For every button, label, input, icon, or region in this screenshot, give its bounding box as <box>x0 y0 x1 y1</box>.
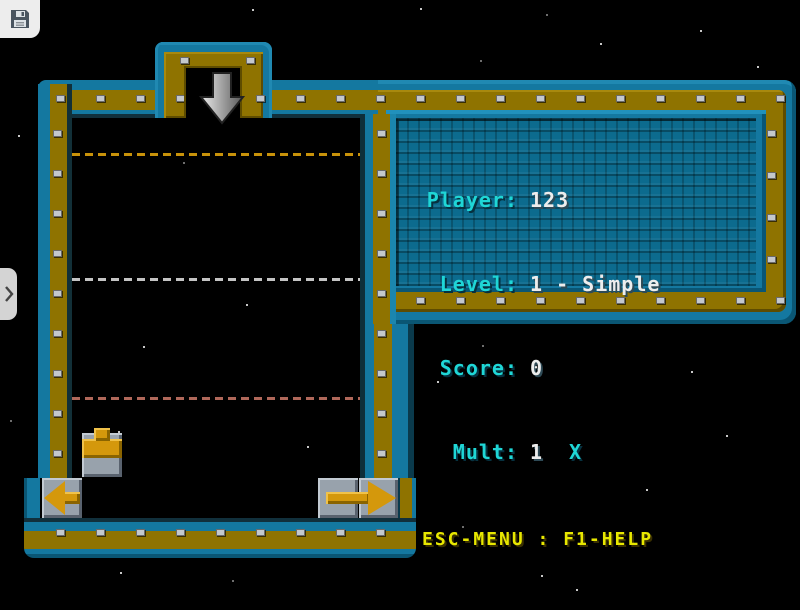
rivet <box>256 95 265 102</box>
rivet <box>136 529 145 536</box>
guide-line <box>72 278 360 281</box>
hud-row-player: Player:123 <box>398 186 758 214</box>
star <box>546 14 548 16</box>
star <box>420 8 422 10</box>
rivet <box>767 214 776 221</box>
mult-label: Mult: <box>398 438 518 466</box>
hud-readout: Player:123 Level:1 - Simple Score:0 Mult… <box>398 130 758 610</box>
rivet <box>56 95 65 102</box>
rivet <box>336 95 345 102</box>
rivet <box>53 210 62 217</box>
player-value: 123 <box>530 188 569 212</box>
rivet <box>53 250 62 257</box>
mult-suffix: X <box>569 440 582 464</box>
mult-value: 1 <box>530 440 543 464</box>
guide-line <box>72 153 360 156</box>
rivet <box>767 130 776 137</box>
rivet <box>176 529 185 536</box>
piece-arrow-left[interactable] <box>42 478 82 518</box>
level-label: Level: <box>398 270 518 298</box>
rivet <box>53 370 62 377</box>
player-label: Player: <box>398 186 518 214</box>
rivet <box>53 130 62 137</box>
rivet <box>336 529 345 536</box>
rivet <box>767 172 776 179</box>
hud-row-score: Score:0 <box>398 354 758 382</box>
rivet <box>377 370 386 377</box>
rivet <box>296 529 305 536</box>
star <box>480 60 482 62</box>
piece-pipe-tee-up[interactable] <box>82 433 122 477</box>
piece-part <box>82 439 122 458</box>
rivet <box>377 210 386 217</box>
floppy-disk-icon <box>9 8 31 30</box>
level-value: 1 - Simple <box>530 272 660 296</box>
rivet <box>776 95 785 102</box>
rivet <box>736 95 745 102</box>
star <box>10 420 12 422</box>
chevron-right-icon <box>3 281 15 307</box>
rivet <box>377 170 386 177</box>
rivet <box>136 95 145 102</box>
drop-arrow-icon <box>199 70 245 126</box>
rivet <box>256 529 265 536</box>
rivet <box>53 330 62 337</box>
rivet <box>656 95 665 102</box>
piece-arrow-right[interactable] <box>318 478 398 518</box>
star <box>18 135 20 137</box>
sidebar-expand-tab[interactable] <box>0 268 17 320</box>
rivet <box>416 95 425 102</box>
rivet <box>377 130 386 137</box>
hud-row-mult: Mult:1X <box>398 438 758 466</box>
field-alcove-left-wall <box>24 478 40 520</box>
rivet <box>376 529 385 536</box>
rivet <box>96 95 105 102</box>
rivet <box>377 290 386 297</box>
game-board[interactable] <box>72 118 360 478</box>
rivet <box>456 95 465 102</box>
rivet <box>96 529 105 536</box>
rivet <box>246 57 255 64</box>
game-screen: Player:123 Level:1 - Simple Score:0 Mult… <box>0 0 800 600</box>
rivet <box>53 410 62 417</box>
piece-part <box>94 428 110 441</box>
field-border-bottom <box>24 518 416 558</box>
score-value: 0 <box>530 356 543 380</box>
guide-line <box>72 397 360 400</box>
rivet <box>377 330 386 337</box>
rivet <box>53 290 62 297</box>
star <box>600 43 602 45</box>
star <box>700 30 702 32</box>
star <box>120 572 122 574</box>
rivet <box>296 95 305 102</box>
rivet <box>180 57 189 64</box>
field-border-left <box>38 84 72 478</box>
rivet <box>377 250 386 257</box>
rivet <box>216 529 225 536</box>
rivet <box>53 170 62 177</box>
score-label: Score: <box>398 354 518 382</box>
rivet <box>53 450 62 457</box>
rivet <box>576 95 585 102</box>
piece-part <box>326 492 370 504</box>
save-button[interactable] <box>0 0 40 38</box>
hud-row-level: Level:1 - Simple <box>398 270 758 298</box>
hotkey-hint: ESC-MENU : F1-HELP <box>398 526 758 554</box>
star <box>757 66 759 68</box>
rivet <box>696 95 705 102</box>
rivet <box>496 95 505 102</box>
rivet <box>776 297 785 304</box>
star <box>232 580 234 582</box>
rivet <box>376 95 385 102</box>
rivet <box>377 410 386 417</box>
rivet <box>377 450 386 457</box>
rivet <box>536 95 545 102</box>
rivet <box>616 95 625 102</box>
rivet <box>56 529 65 536</box>
star <box>252 9 254 11</box>
rivet <box>767 256 776 263</box>
